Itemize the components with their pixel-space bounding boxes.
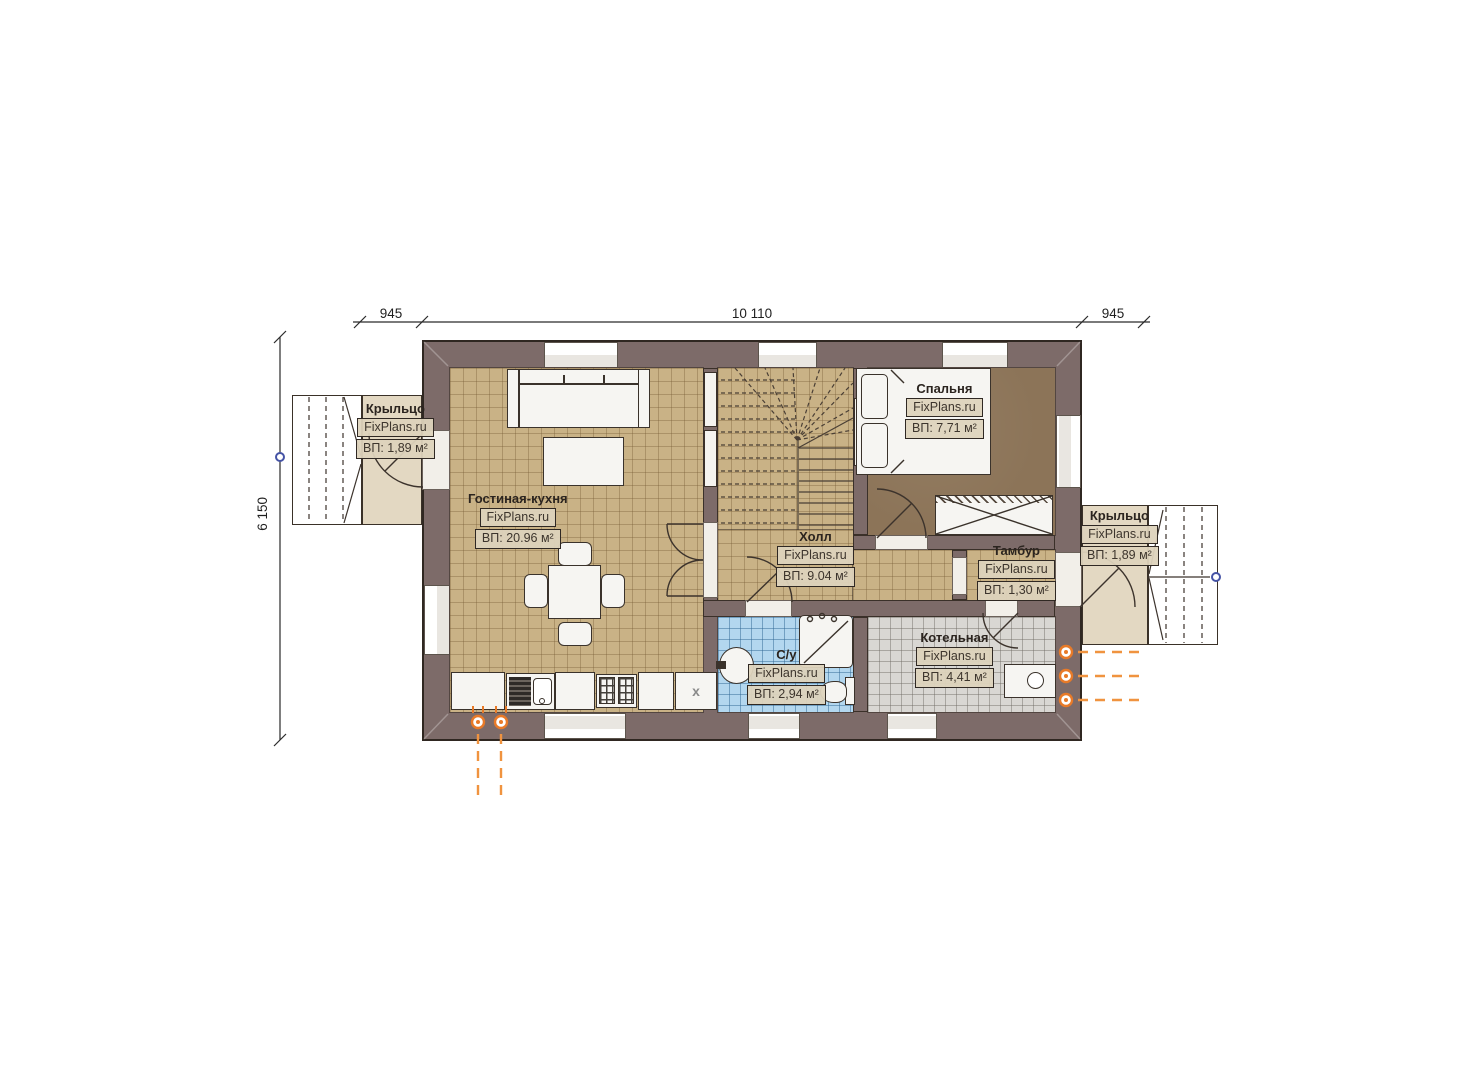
room-name: Холл bbox=[799, 530, 832, 544]
kitchen-counter bbox=[555, 672, 595, 710]
floor-hall-east bbox=[853, 550, 952, 600]
area-box: ВП: 4,41 м² bbox=[915, 668, 994, 688]
boiler-door-opening bbox=[985, 600, 1018, 617]
dim-top-right: 945 bbox=[1102, 306, 1125, 321]
dim-left-height: 6 150 bbox=[255, 497, 270, 531]
room-label-hall: Холл FixPlans.ru ВП: 9.04 м² bbox=[776, 530, 855, 587]
brand-box: FixPlans.ru bbox=[906, 398, 983, 418]
dining-chair-left bbox=[524, 574, 548, 608]
double-door-opening-living bbox=[703, 522, 718, 598]
room-label-bedroom: Спальня FixPlans.ru ВП: 7,71 м² bbox=[905, 382, 984, 439]
brand-box: FixPlans.ru bbox=[916, 647, 993, 667]
bedroom-door-opening bbox=[875, 535, 928, 550]
closet bbox=[935, 495, 1053, 535]
vent-label: x bbox=[692, 683, 700, 699]
pillow bbox=[861, 374, 888, 419]
dim-top-center: 10 110 bbox=[732, 306, 772, 321]
dining-chair-right bbox=[601, 574, 625, 608]
window-bottom-boiler bbox=[887, 713, 937, 739]
coffee-table bbox=[543, 437, 624, 486]
room-name: С/у bbox=[776, 648, 796, 662]
room-label-porch-right: Крыльцо FixPlans.ru ВП: 1,89 м² bbox=[1080, 509, 1159, 566]
room-name: Крыльцо bbox=[366, 402, 425, 416]
room-label-living: Гостиная-кухня FixPlans.ru ВП: 20.96 м² bbox=[468, 492, 568, 549]
wall-bathroom-boiler bbox=[853, 617, 868, 712]
window-bottom-kitchen bbox=[544, 713, 626, 739]
brand-box: FixPlans.ru bbox=[357, 418, 434, 438]
brand-box: FixPlans.ru bbox=[1081, 525, 1158, 545]
kitchen-cabinet bbox=[451, 672, 505, 710]
floor-plan-canvas: x bbox=[0, 0, 1473, 1080]
room-label-bathroom: С/у FixPlans.ru ВП: 2,94 м² bbox=[747, 648, 826, 705]
room-name: Спальня bbox=[916, 382, 972, 396]
bathroom-door-opening bbox=[745, 600, 792, 617]
area-box: ВП: 7,71 м² bbox=[905, 419, 984, 439]
boiler-counter bbox=[1004, 664, 1056, 698]
pillow bbox=[861, 423, 888, 468]
brand-box: FixPlans.ru bbox=[777, 546, 854, 566]
kitchen-counter-2 bbox=[638, 672, 674, 710]
dining-chair-bottom bbox=[558, 622, 592, 646]
partition-living-stairs-lower bbox=[704, 430, 717, 487]
window-right-bedroom bbox=[1056, 415, 1081, 488]
window-bottom-bathroom bbox=[748, 713, 800, 739]
hall-vestibule-opening bbox=[952, 557, 967, 595]
window-top-living bbox=[544, 342, 618, 367]
room-label-boiler: Котельная FixPlans.ru ВП: 4,41 м² bbox=[915, 631, 994, 688]
floor-stairs bbox=[718, 368, 853, 530]
area-box: ВП: 1,30 м² bbox=[977, 581, 1056, 601]
area-box: ВП: 9.04 м² bbox=[776, 567, 855, 587]
porch-left-steps bbox=[292, 395, 362, 525]
dining-table bbox=[548, 565, 601, 619]
entry-door-opening-right bbox=[1055, 552, 1082, 607]
room-label-vestibule: Тамбур FixPlans.ru ВП: 1,30 м² bbox=[977, 544, 1056, 601]
brand-box: FixPlans.ru bbox=[480, 508, 557, 528]
brand-box: FixPlans.ru bbox=[978, 560, 1055, 580]
room-name: Крыльцо bbox=[1090, 509, 1149, 523]
partition-living-stairs-upper bbox=[704, 372, 717, 427]
area-box: ВП: 20.96 м² bbox=[475, 529, 561, 549]
room-name: Котельная bbox=[920, 631, 988, 645]
brand-box: FixPlans.ru bbox=[748, 664, 825, 684]
kitchen-sink-unit bbox=[506, 673, 555, 710]
area-box: ВП: 2,94 м² bbox=[747, 685, 826, 705]
window-left-living bbox=[424, 585, 449, 655]
vent-shaft: x bbox=[675, 672, 717, 710]
room-name: Тамбур bbox=[993, 544, 1040, 558]
boiler-unit bbox=[1027, 672, 1044, 689]
room-name: Гостиная-кухня bbox=[468, 492, 568, 506]
room-label-porch-left: Крыльцо FixPlans.ru ВП: 1,89 м² bbox=[356, 402, 435, 459]
dim-top-left: 945 bbox=[380, 306, 403, 321]
window-top-stairs bbox=[758, 342, 817, 367]
sofa bbox=[507, 369, 650, 428]
stove bbox=[596, 674, 637, 708]
area-box: ВП: 1,89 м² bbox=[1080, 546, 1159, 566]
area-box: ВП: 1,89 м² bbox=[356, 439, 435, 459]
window-top-bedroom bbox=[942, 342, 1008, 367]
